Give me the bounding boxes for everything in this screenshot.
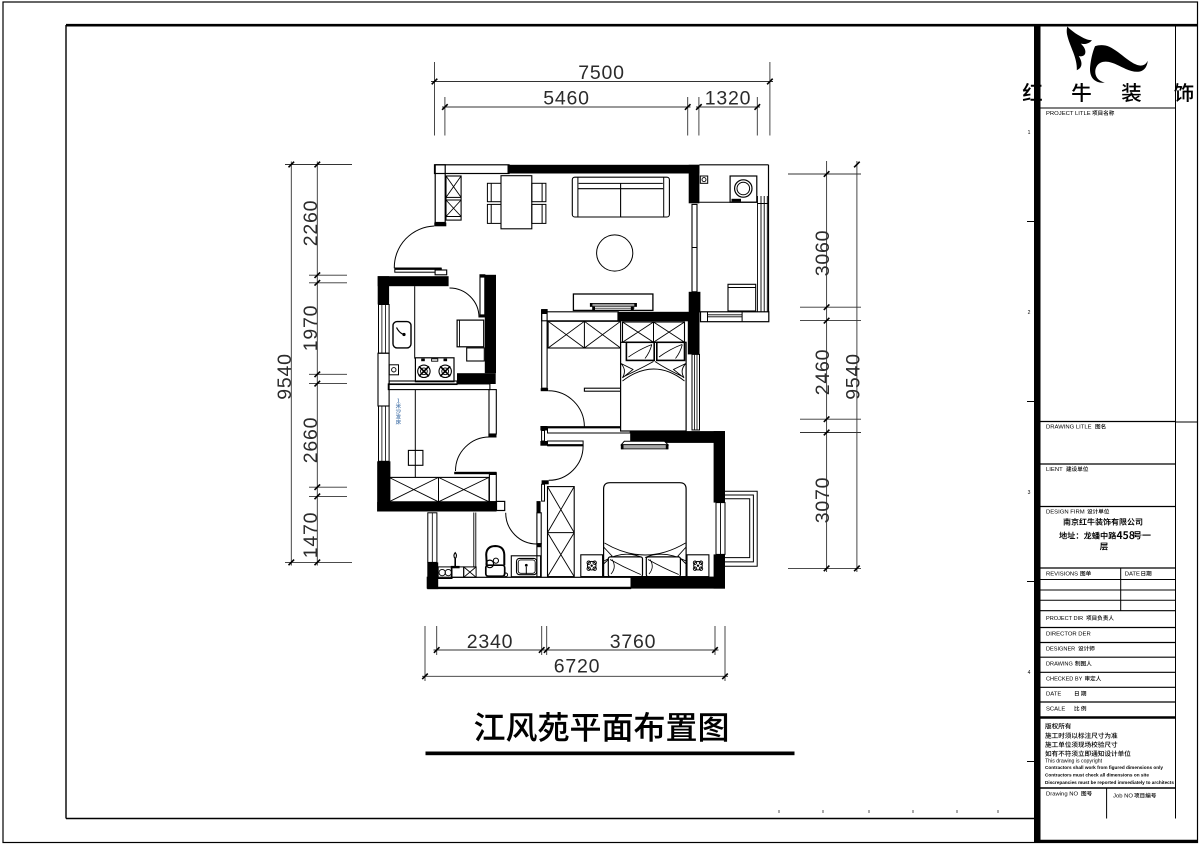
svg-text:3: 3 <box>1028 490 1031 496</box>
svg-text:9540: 9540 <box>843 353 865 400</box>
svg-text:Discrepancies must be reported: Discrepancies must be reported immediate… <box>1045 780 1174 785</box>
svg-text:Job NO: Job NO <box>1113 794 1133 800</box>
svg-text:2460: 2460 <box>812 349 834 396</box>
svg-text:DATE: DATE <box>1125 572 1140 578</box>
svg-text:PROJECT LITLE: PROJECT LITLE <box>1046 111 1091 117</box>
svg-text:1: 1 <box>1028 130 1031 136</box>
svg-text:2340: 2340 <box>467 631 514 653</box>
svg-text:Contractors must check all dim: Contractors must check all dimensions on… <box>1045 773 1149 778</box>
svg-text:1470: 1470 <box>300 512 322 559</box>
svg-text:4: 4 <box>1028 670 1031 676</box>
svg-text:DATE: DATE <box>1046 692 1061 698</box>
svg-text:DRAWING LITLE: DRAWING LITLE <box>1046 425 1092 431</box>
svg-text:Drawing NO: Drawing NO <box>1046 792 1078 798</box>
svg-text:DIRECTOR DER: DIRECTOR DER <box>1046 632 1091 638</box>
svg-text:3060: 3060 <box>812 230 834 277</box>
svg-text:3070: 3070 <box>812 477 834 524</box>
svg-text:6720: 6720 <box>554 656 601 678</box>
svg-text:5460: 5460 <box>543 88 590 110</box>
svg-text:1320: 1320 <box>705 88 752 110</box>
svg-text:This drawing is copyright: This drawing is copyright <box>1045 759 1103 765</box>
svg-text:CHECKED BY: CHECKED BY <box>1046 677 1083 683</box>
svg-text:9540: 9540 <box>274 353 296 400</box>
svg-text:LIENT: LIENT <box>1046 467 1063 473</box>
svg-text:DESIGNER: DESIGNER <box>1046 647 1075 653</box>
svg-text:2260: 2260 <box>300 200 322 247</box>
svg-text:2: 2 <box>1028 310 1031 316</box>
svg-text:DESIGN FIRM: DESIGN FIRM <box>1046 510 1085 516</box>
svg-text:SCALE: SCALE <box>1046 707 1065 713</box>
svg-text:3760: 3760 <box>610 631 657 653</box>
svg-text:DRAWING: DRAWING <box>1046 662 1073 668</box>
svg-text:2660: 2660 <box>300 417 322 464</box>
svg-text:PROJECT DIR: PROJECT DIR <box>1046 616 1083 622</box>
svg-text:1970: 1970 <box>300 305 322 352</box>
svg-text:REVISIONS: REVISIONS <box>1046 572 1078 578</box>
svg-text:Contractors shall work from fi: Contractors shall work from figured dime… <box>1045 765 1163 770</box>
svg-text:7500: 7500 <box>578 62 625 84</box>
